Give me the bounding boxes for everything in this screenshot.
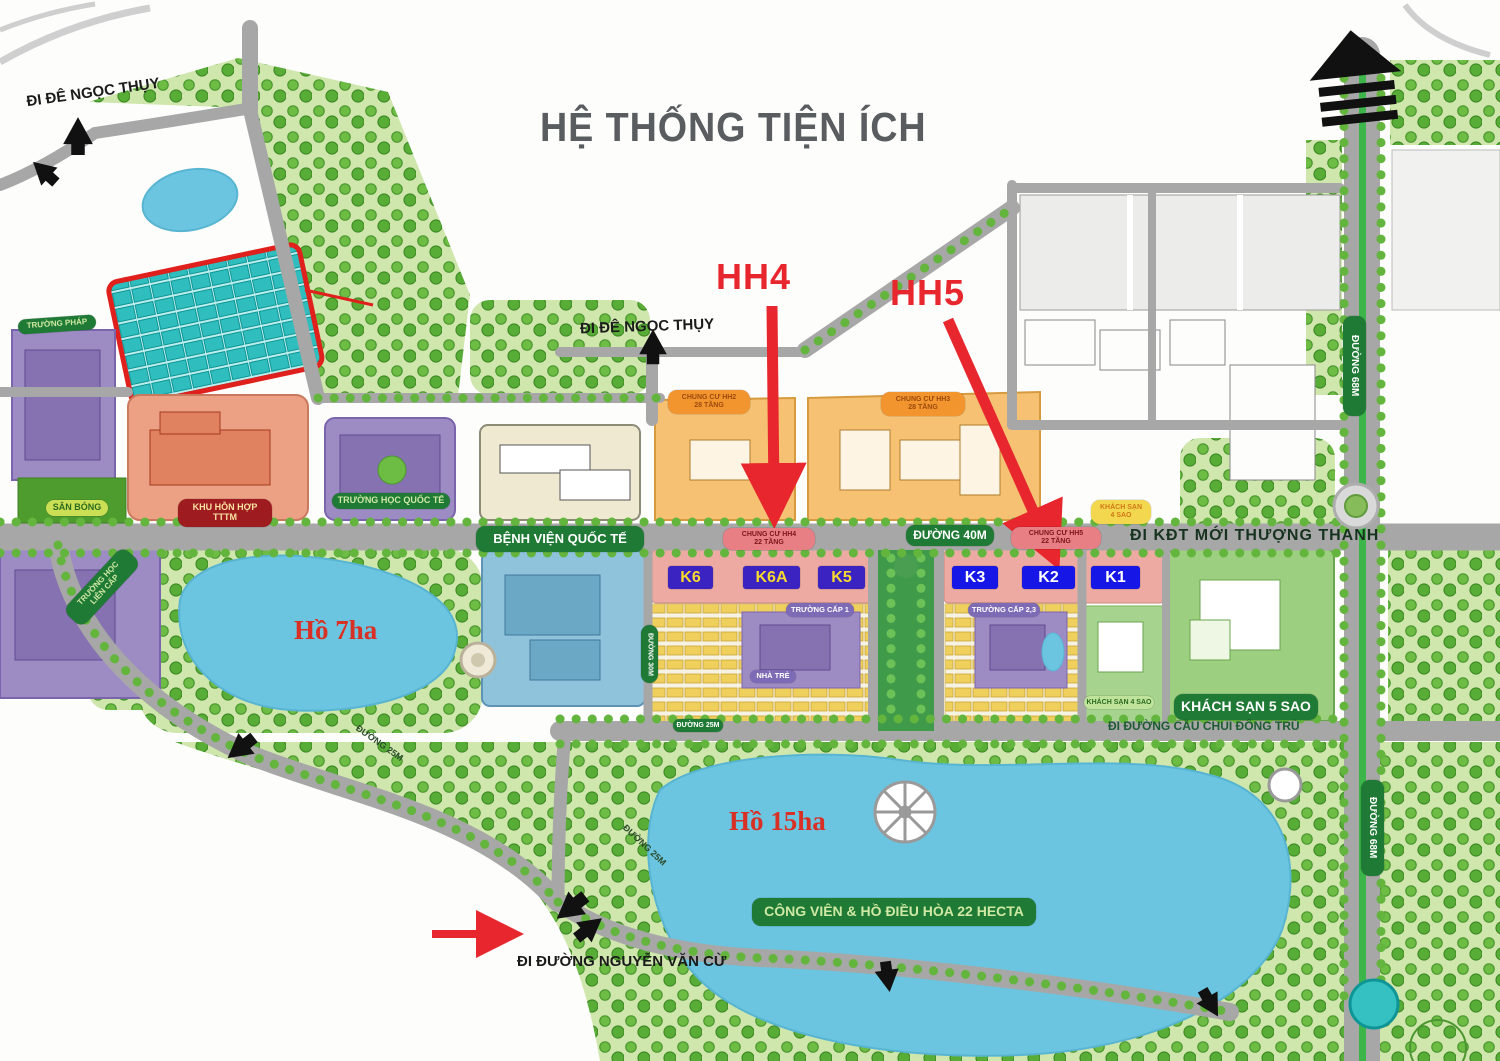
banner-san-bong: SÂN BÓNG [46, 500, 108, 516]
banner-chung-cu-hh2: CHUNG CƯ HH2 28 TẦNG [668, 390, 750, 414]
block-marker-k2: K2 [1022, 566, 1075, 589]
block-marker-k6: K6 [668, 566, 713, 589]
banner-line: CHUNG CƯ HH4 [742, 531, 796, 539]
road-label-nguyen-van-cu: ĐI ĐƯỜNG NGUYỄN VĂN CỪ [517, 953, 726, 970]
block-marker-k3: K3 [952, 566, 998, 589]
lake-label-15ha: Hồ 15ha [729, 806, 826, 837]
banner-line: CHUNG CƯ HH5 [1029, 530, 1083, 538]
banner-cong-vien: CÔNG VIÊN & HỒ ĐIỀU HÒA 22 HECTA [752, 898, 1036, 926]
road-label-di-de-ngoc-thuy-nw: ĐI ĐÊ NGỌC THỤY [25, 75, 160, 111]
banner-line: CHUNG CƯ HH2 [682, 394, 736, 402]
banner-khu-hon-hop-tttm: KHU HỖN HỢP TTTM [178, 499, 272, 527]
banner-duong-30m: ĐƯỜNG 30M [641, 625, 658, 683]
label-layer: HỆ THỐNG TIỆN ÍCH ĐI ĐÊ NGỌC THỤY ĐI ĐÊ … [0, 0, 1500, 1061]
banner-duong-40m: ĐƯỜNG 40M [906, 525, 994, 546]
banner-duong-68m-bottom: ĐƯỜNG 68M [1361, 780, 1384, 876]
block-marker-k6a: K6A [743, 566, 800, 589]
banner-truong-cap-23: TRƯỜNG CẤP 2,3 [968, 603, 1040, 617]
block-marker-k5: K5 [818, 566, 865, 589]
banner-duong-68m-top: ĐƯỜNG 68M [1343, 316, 1366, 416]
banner-truong-hoc-lien-cap: TRƯỜNG HỌC LIÊN CẤP [62, 546, 141, 628]
banner-chung-cu-hh5: CHUNG CƯ HH5 22 TẦNG [1011, 527, 1101, 549]
banner-benh-vien-quoc-te: BỆNH VIỆN QUỐC TẾ [476, 526, 644, 552]
road-label-duong-25m-sw2: ĐƯỜNG 25M [621, 823, 668, 868]
banner-duong-25m: ĐƯỜNG 25M [673, 719, 723, 732]
road-label-di-de-ngoc-thuy-mid: ĐI ĐÊ NGỌC THỤY [580, 316, 715, 338]
masterplan-map: HỆ THỐNG TIỆN ÍCH ĐI ĐÊ NGỌC THỤY ĐI ĐÊ … [0, 0, 1500, 1061]
banner-truong-phap: TRƯỜNG PHÁP [18, 314, 97, 334]
block-marker-k1: K1 [1091, 566, 1140, 589]
banner-nha-tre: NHÀ TRẺ [750, 670, 796, 683]
marker-hh4: HH4 [716, 256, 791, 298]
banner-line: 22 TẦNG [1041, 538, 1071, 546]
road-label-cau-chui-dong-tru: ĐI ĐƯỜNG CẦU CHUI ĐÔNG TRÙ [1108, 719, 1300, 733]
banner-line: 28 TẦNG [908, 404, 938, 412]
banner-line: TTTM [213, 513, 237, 523]
banner-khach-san-5-sao: KHÁCH SẠN 5 SAO [1174, 694, 1318, 720]
banner-chung-cu-hh4: CHUNG CƯ HH4 22 TẦNG [723, 528, 815, 550]
banner-line: KHÁCH SẠN [1100, 504, 1142, 512]
road-label-di-kdt-moi-thuong-thanh: ĐI KĐT MỚI THƯỢNG THANH [1130, 527, 1379, 545]
banner-truong-cap-1: TRƯỜNG CẤP 1 [786, 603, 854, 617]
banner-line: 28 TẦNG [694, 402, 724, 410]
banner-chung-cu-hh3: CHUNG CƯ HH3 28 TẦNG [881, 392, 965, 416]
road-label-duong-25m-sw1: ĐƯỜNG 25M [354, 723, 405, 763]
marker-hh5: HH5 [890, 272, 965, 314]
banner-truong-hoc-quoc-te: TRƯỜNG HỌC QUỐC TẾ [332, 493, 450, 509]
banner-khach-san-4-sao-top: KHÁCH SẠN 4 SAO [1091, 500, 1151, 524]
banner-line: 22 TẦNG [754, 539, 784, 547]
banner-line: CHUNG CƯ HH3 [896, 396, 950, 404]
lake-label-7ha: Hồ 7ha [294, 615, 377, 646]
page-title: HỆ THỐNG TIỆN ÍCH [540, 104, 927, 151]
banner-khach-san-4-sao: KHÁCH SẠN 4 SAO [1084, 696, 1154, 709]
banner-line: 4 SAO [1110, 512, 1131, 520]
